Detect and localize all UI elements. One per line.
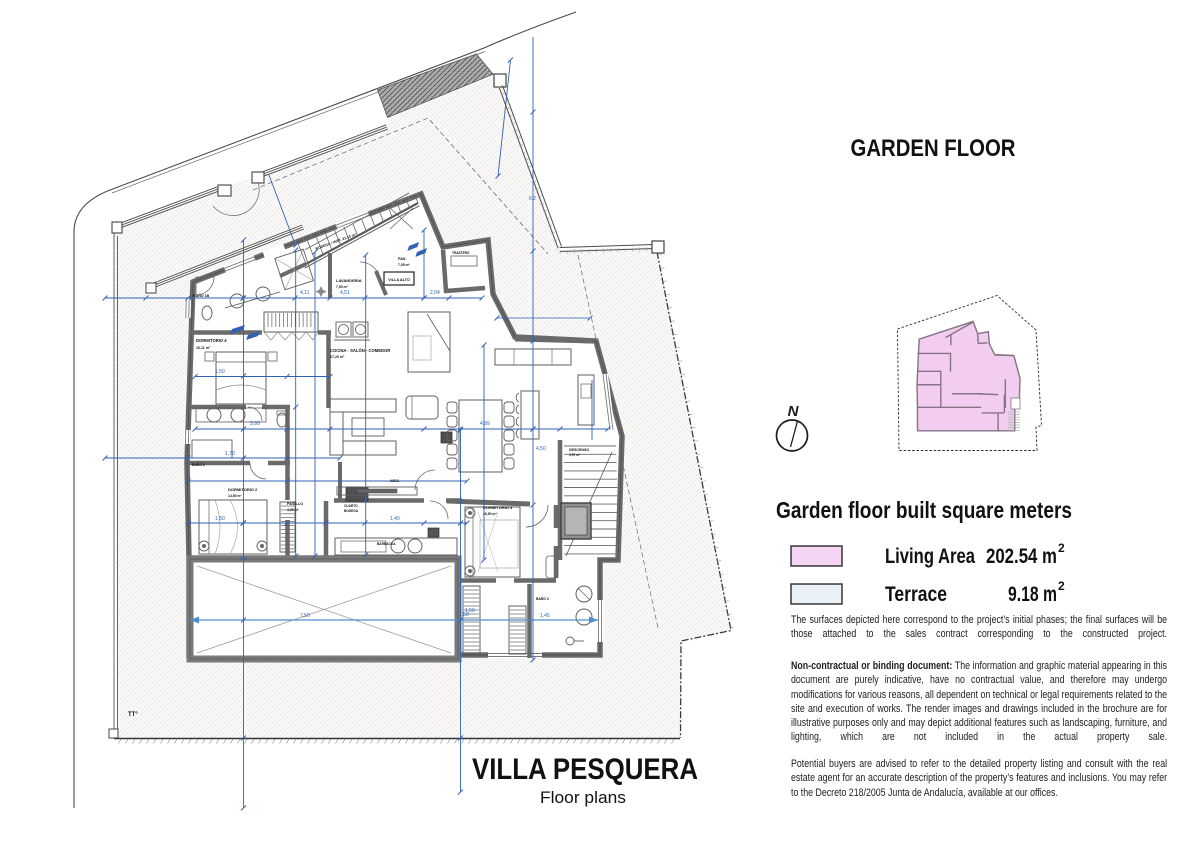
svg-text:Floor plans: Floor plans <box>540 788 626 807</box>
svg-text:TRASTERO: TRASTERO <box>452 251 470 255</box>
svg-text:9.18 m: 9.18 m <box>1008 582 1057 606</box>
svg-text:4,70 m²: 4,70 m² <box>569 453 580 457</box>
svg-text:BAÑO 1B: BAÑO 1B <box>193 293 210 298</box>
svg-text:PASILLO: PASILLO <box>287 502 303 506</box>
svg-text:3,99: 3,99 <box>250 421 260 427</box>
svg-text:COCINA - SALÓN - COMEDOR: COCINA - SALÓN - COMEDOR <box>330 348 390 353</box>
svg-text:4,29 m²: 4,29 m² <box>287 508 300 512</box>
svg-text:202.54 m: 202.54 m <box>986 544 1057 568</box>
svg-text:BODEGA: BODEGA <box>344 509 359 513</box>
svg-text:5,0: 5,0 <box>240 556 247 562</box>
svg-text:67,20 m²: 67,20 m² <box>330 355 345 359</box>
svg-text:1,50: 1,50 <box>215 516 225 522</box>
svg-text:PAIL: PAIL <box>398 257 407 261</box>
svg-text:4,51: 4,51 <box>340 290 350 296</box>
svg-text:N: N <box>788 403 800 420</box>
svg-text:LAVANDERIA: LAVANDERIA <box>336 278 362 283</box>
svg-text:CUARTO: CUARTO <box>344 504 358 508</box>
svg-text:Terrace: Terrace <box>885 582 947 606</box>
svg-text:7,05 m²: 7,05 m² <box>398 263 411 267</box>
svg-text:DORMITORIO 2: DORMITORIO 2 <box>228 487 258 492</box>
svg-text:2: 2 <box>1058 541 1065 555</box>
svg-text:DORMITORIO 4: DORMITORIO 4 <box>196 338 227 343</box>
svg-text:DORMITORIO 3: DORMITORIO 3 <box>483 505 513 510</box>
svg-text:GARDEN FLOOR: GARDEN FLOOR <box>851 135 1016 162</box>
svg-text:TT°: TT° <box>128 712 138 718</box>
svg-text:1,40: 1,40 <box>390 516 400 522</box>
svg-text:BAÑO 3: BAÑO 3 <box>536 596 549 601</box>
svg-text:1,70: 1,70 <box>225 451 235 457</box>
svg-text:14,50 m²: 14,50 m² <box>228 494 242 498</box>
svg-text:1,50: 1,50 <box>215 369 225 375</box>
svg-text:VILLA ALTO: VILLA ALTO <box>388 278 410 282</box>
svg-text:4,50: 4,50 <box>536 446 546 452</box>
svg-text:4,11: 4,11 <box>300 290 310 296</box>
svg-text:1,50: 1,50 <box>459 612 469 618</box>
svg-text:7,50: 7,50 <box>300 613 310 619</box>
svg-text:Garden floor built square mete: Garden floor built square meters <box>776 497 1072 523</box>
svg-text:16,11 m²: 16,11 m² <box>196 346 211 350</box>
svg-text:6,2: 6,2 <box>529 196 536 202</box>
svg-text:Living Area: Living Area <box>885 544 976 568</box>
svg-text:DESCENSO: DESCENSO <box>569 448 589 452</box>
svg-text:VILLA PESQUERA: VILLA PESQUERA <box>472 753 698 786</box>
svg-text:2: 2 <box>1058 579 1065 593</box>
svg-text:1,45: 1,45 <box>540 613 550 619</box>
svg-text:BARBACOA: BARBACOA <box>377 542 396 546</box>
svg-text:2,04: 2,04 <box>430 290 440 296</box>
svg-text:4,99: 4,99 <box>480 421 490 427</box>
svg-text:ASEO: ASEO <box>390 479 400 483</box>
svg-text:BAÑO 2: BAÑO 2 <box>192 462 205 467</box>
svg-text:16,50 m²: 16,50 m² <box>483 512 497 516</box>
svg-text:7,50 m²: 7,50 m² <box>336 285 349 289</box>
